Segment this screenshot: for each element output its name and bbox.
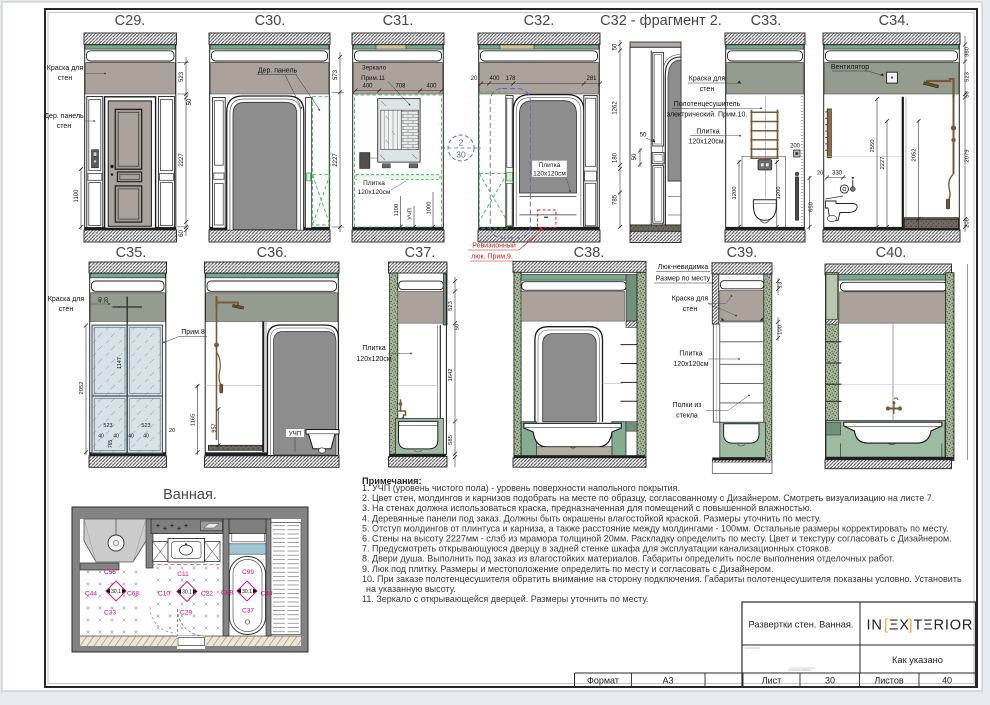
svg-text:40: 40 [128,434,134,440]
svg-text:2079: 2079 [965,150,971,163]
svg-text:2227: 2227 [880,157,886,170]
svg-text:178: 178 [505,76,516,82]
svg-text:40: 40 [942,676,952,686]
svg-text:7. Предусмотреть открывающуюся: 7. Предусмотреть открывающуюся дверцу в … [362,544,832,554]
svg-text:8. Двери душа. Выполнить под з: 8. Двери душа. Выполнить под заказ из вл… [362,554,894,564]
svg-text:С11: С11 [177,571,189,578]
svg-text:30: 30 [456,150,466,160]
svg-text:13: 13 [778,282,784,288]
svg-text:С29: С29 [180,609,192,616]
svg-text:Размер по месту: Размер по месту [656,276,711,283]
svg-text:30.1: 30.1 [242,589,252,595]
svg-text:400: 400 [489,76,500,82]
svg-text:50: 50 [455,324,461,330]
svg-text:120х120см.: 120х120см. [688,139,725,146]
svg-text:3. На стенах должна использова: 3. На стенах должна использоваться краск… [362,503,812,513]
svg-text:стен: стен [58,75,73,82]
svg-text:стен: стен [683,306,698,313]
svg-text:980: 980 [965,47,971,57]
svg-text:40: 40 [98,434,104,440]
svg-text:20: 20 [104,297,110,303]
svg-text:TΞRIOR: TΞRIOR [914,618,974,634]
svg-text:стен: стен [57,123,72,130]
svg-text:Прим.11: Прим.11 [361,75,385,82]
svg-text:9. Люк под плитку. Размеры и м: 9. Люк под плитку. Размеры и местоположе… [362,564,773,574]
svg-text:С32 - фрагмент 2.: С32 - фрагмент 2. [600,13,722,29]
svg-text:Плитка: Плитка [696,129,719,136]
svg-text:585: 585 [448,435,454,445]
svg-text:Дер. панель: Дер. панель [44,113,84,120]
svg-text:40: 40 [143,434,149,440]
svg-text:20: 20 [169,428,175,434]
svg-text:люк. Прим.9.: люк. Прим.9. [471,254,513,261]
svg-text:Краска для: Краска для [47,65,84,72]
svg-text:650: 650 [809,202,815,212]
svg-text:2227: 2227 [333,153,339,167]
svg-text:330: 330 [832,171,843,177]
svg-text:С38.: С38. [574,245,605,261]
svg-text:С29.: С29. [115,13,146,29]
svg-text:стекла: стекла [676,413,698,420]
svg-text:2227: 2227 [179,153,185,167]
svg-text:УЧП: УЧП [289,431,302,438]
svg-text:50: 50 [187,98,193,105]
svg-text:1147: 1147 [117,357,123,369]
svg-text:30.1: 30.1 [111,589,121,595]
svg-text:С33: С33 [104,609,116,616]
svg-text:10. При заказе полотенцесушите: 10. При заказе полотенцесушителя обратит… [362,574,962,584]
svg-text:Листов: Листов [874,676,903,686]
svg-text:1100: 1100 [74,189,80,203]
svg-text:400: 400 [362,84,373,90]
svg-text:120х120см: 120х120см [673,361,708,368]
svg-text:523: 523 [141,423,150,429]
svg-text:1. УЧП (уровень чистого пола): 1. УЧП (уровень чистого пола) - уровень … [362,483,680,493]
svg-text:С10: С10 [158,590,170,597]
svg-text:523: 523 [448,301,454,311]
svg-text:120х120см: 120х120см [358,189,391,196]
svg-text:120х120см: 120х120см [533,171,566,178]
svg-text:120х120см: 120х120см [356,356,391,363]
svg-text:Формат: Формат [587,676,619,686]
svg-text:Зеркало: Зеркало [362,64,387,71]
svg-text:765: 765 [108,440,114,449]
svg-text:20: 20 [471,76,478,82]
svg-text:40: 40 [113,434,119,440]
svg-text:281: 281 [586,76,597,82]
svg-text:50: 50 [640,133,647,139]
svg-text:Плитка: Плитка [363,180,385,187]
svg-text:50: 50 [965,91,971,97]
svg-text:50: 50 [632,153,638,160]
svg-text:С30.: С30. [255,13,286,29]
svg-text:С40.: С40. [876,245,907,261]
svg-text:стен: стен [59,306,74,313]
svg-text:IN: IN [867,618,883,634]
svg-text:Лист: Лист [762,676,782,686]
svg-text:С44: С44 [85,590,97,597]
svg-text:С40: С40 [261,590,273,597]
svg-text:Развертки стен. Ванная.: Развертки стен. Ванная. [749,620,854,630]
svg-text:30: 30 [825,676,835,686]
svg-text:208: 208 [965,218,971,228]
svg-text:С33.: С33. [751,13,782,29]
svg-text:Прим.8: Прим.8 [181,329,205,336]
svg-text:523: 523 [103,423,112,429]
svg-text:400: 400 [426,84,437,90]
svg-text:С31.: С31. [383,13,414,29]
svg-text:Полки из: Полки из [673,402,702,409]
svg-text:Краска для: Краска для [48,296,85,303]
svg-text:Как указано: Как указано [892,655,943,665]
svg-text:Ревизионный: Ревизионный [472,242,516,250]
svg-text:электрический. Прим.10.: электрический. Прим.10. [667,111,748,119]
svg-text:2. Цвет стен, молдингов и карн: 2. Цвет стен, молдингов и карнизов подоб… [362,493,934,503]
svg-text:6. Стены на высоту 2227мм - сл: 6. Стены на высоту 2227мм - слэб из мрам… [362,534,952,544]
svg-text:С22: С22 [201,590,213,597]
svg-text:С35.: С35. [116,245,147,261]
svg-text:С39.: С39. [727,245,758,261]
svg-text:1100: 1100 [394,204,400,216]
svg-text:]: ] [909,618,913,634]
svg-text:1000: 1000 [427,202,433,215]
svg-text:стен: стен [700,86,715,93]
svg-text:Плитка: Плитка [539,162,561,169]
svg-text:С36.: С36. [257,245,288,261]
svg-text:согласовано: согласовано [788,667,812,672]
svg-text:А3: А3 [662,676,673,686]
svg-text:УЧП: УЧП [408,208,414,220]
svg-text:180: 180 [613,152,619,163]
svg-text:С34.: С34. [879,13,910,29]
svg-text:С68: С68 [127,590,139,597]
svg-text:на указанную высоту.: на указанную высоту. [366,584,456,594]
svg-text:С88: С88 [221,589,233,596]
svg-text:2052: 2052 [79,382,85,395]
svg-text:Дер. панель: Дер. панель [258,68,298,75]
svg-text:2550: 2550 [870,140,876,153]
svg-text:Вентилятор: Вентилятор [831,64,869,71]
svg-text:523: 523 [965,72,971,82]
svg-text:С99: С99 [242,569,254,576]
svg-text:1200: 1200 [776,187,782,200]
svg-text:1165: 1165 [191,414,197,426]
svg-text:5. Отступ молдингов от плинтус: 5. Отступ молдингов от плинтуса и карниз… [362,523,949,533]
svg-text:С37: С37 [242,607,254,614]
svg-text:Плитка: Плитка [679,351,702,358]
svg-text:1262: 1262 [613,101,619,115]
svg-text:200: 200 [790,144,801,150]
svg-text:С37.: С37. [405,245,436,261]
svg-text:Полотенцесушитель: Полотенцесушитель [674,101,741,108]
svg-text:2: 2 [459,138,464,148]
svg-text:4. Деревянные панели под заказ: 4. Деревянные панели под заказ. Должны б… [362,513,821,523]
svg-text:50: 50 [613,43,619,50]
svg-text:60: 60 [179,230,185,237]
svg-text:20: 20 [817,171,823,177]
svg-text:[: [ [884,618,888,634]
svg-text:1642: 1642 [448,369,454,382]
svg-text:11. Зеркало с открывающейся дв: 11. Зеркало с открывающейся дверцей. Раз… [362,594,648,604]
svg-text:Краска для: Краска для [672,296,709,303]
svg-text:Ванная.: Ванная. [163,487,217,503]
svg-text:2052: 2052 [912,149,918,162]
svg-text:Плитка: Плитка [362,345,385,352]
svg-text:1200: 1200 [732,187,738,200]
svg-text:С32.: С32. [524,13,555,29]
svg-text:Краска для: Краска для [689,76,726,83]
svg-text:957: 957 [212,423,218,432]
svg-text:708: 708 [395,84,406,90]
svg-text:ΞX: ΞX [889,618,910,634]
svg-text:523: 523 [179,71,185,82]
svg-text:30.1: 30.1 [182,590,192,596]
svg-text:С55: С55 [104,569,116,576]
svg-text:100: 100 [778,325,784,335]
svg-text:785: 785 [613,194,619,205]
svg-text:Люк-невидимка: Люк-невидимка [658,264,709,271]
svg-text:573: 573 [333,69,339,80]
